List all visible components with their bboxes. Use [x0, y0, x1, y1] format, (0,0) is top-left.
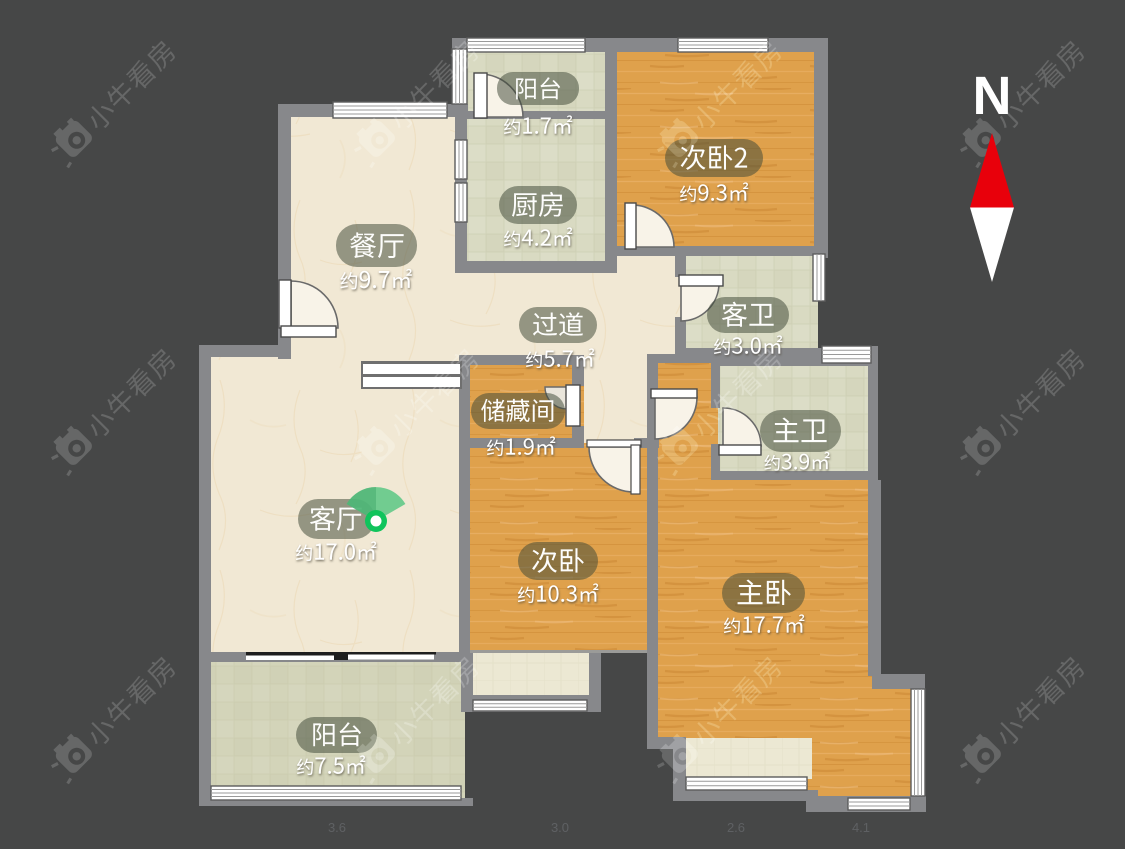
svg-text:N: N — [973, 66, 1012, 126]
svg-text:4.1: 4.1 — [852, 820, 870, 835]
svg-text:3.0: 3.0 — [551, 820, 569, 835]
svg-text:3.6: 3.6 — [328, 820, 346, 835]
svg-text:2.6: 2.6 — [727, 820, 745, 835]
